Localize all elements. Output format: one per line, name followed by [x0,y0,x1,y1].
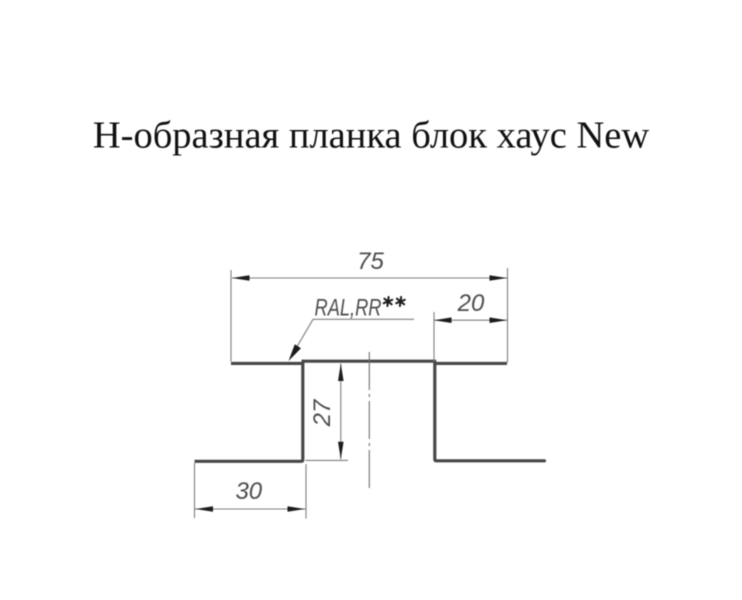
svg-text:27: 27 [309,398,336,427]
svg-text:20: 20 [457,290,485,317]
svg-text:30: 30 [235,478,262,505]
svg-text:75: 75 [357,248,384,275]
svg-text:RAL,RR: RAL,RR [315,295,382,322]
svg-text:Н-образная планка блок хаус Ne: Н-образная планка блок хаус New [93,115,650,157]
